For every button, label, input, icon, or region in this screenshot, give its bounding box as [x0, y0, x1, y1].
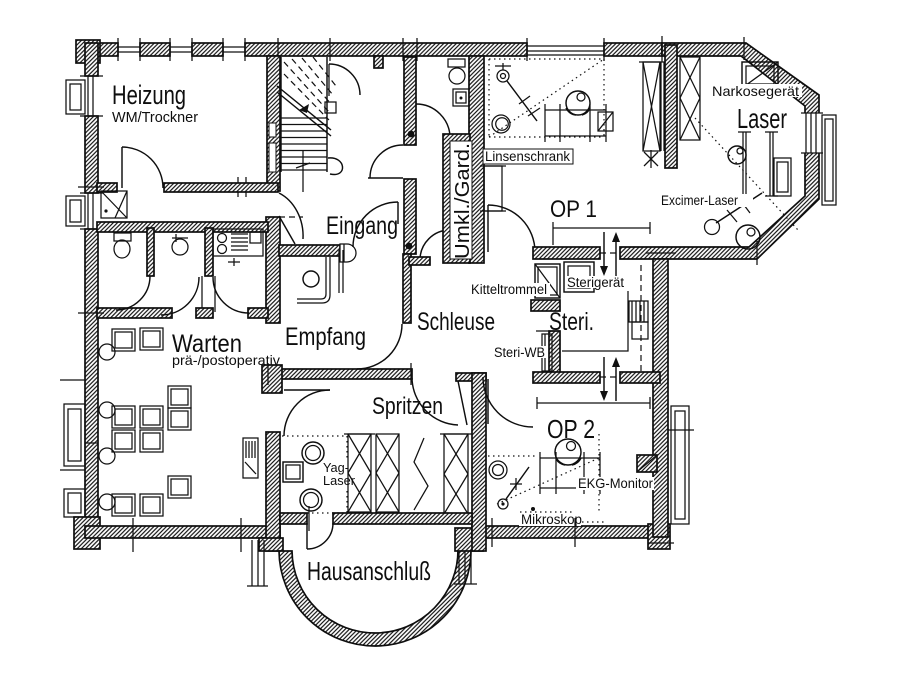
svg-text:Sterigerät: Sterigerät [567, 275, 624, 290]
svg-text:Schleuse: Schleuse [417, 308, 495, 336]
svg-text:OP 1: OP 1 [550, 196, 597, 223]
svg-text:Steri-WB: Steri-WB [494, 345, 545, 360]
svg-text:Yag-: Yag- [323, 461, 349, 475]
svg-text:Steri.: Steri. [549, 308, 594, 336]
svg-text:prä-/postoperativ: prä-/postoperativ [172, 352, 280, 368]
svg-text:OP 2: OP 2 [547, 414, 595, 444]
svg-text:Linsenschrank: Linsenschrank [485, 148, 571, 164]
svg-text:Spritzen: Spritzen [372, 393, 443, 420]
svg-text:Narkosegerät: Narkosegerät [712, 83, 799, 99]
svg-text:Empfang: Empfang [285, 323, 366, 351]
svg-text:EKG-Monitor: EKG-Monitor [578, 475, 653, 491]
svg-text:Hausanschluß: Hausanschluß [307, 556, 431, 586]
svg-text:Umkl./Gard.: Umkl./Gard. [451, 143, 474, 259]
svg-text:Kitteltrommel: Kitteltrommel [471, 282, 547, 297]
svg-text:WM/Trockner: WM/Trockner [112, 109, 198, 126]
svg-text:Eingang: Eingang [326, 212, 398, 240]
svg-text:Excimer-Laser: Excimer-Laser [661, 192, 738, 208]
svg-text:Heizung: Heizung [112, 80, 186, 110]
svg-text:Laser: Laser [737, 103, 787, 134]
svg-text:Mikroskop: Mikroskop [521, 511, 582, 527]
